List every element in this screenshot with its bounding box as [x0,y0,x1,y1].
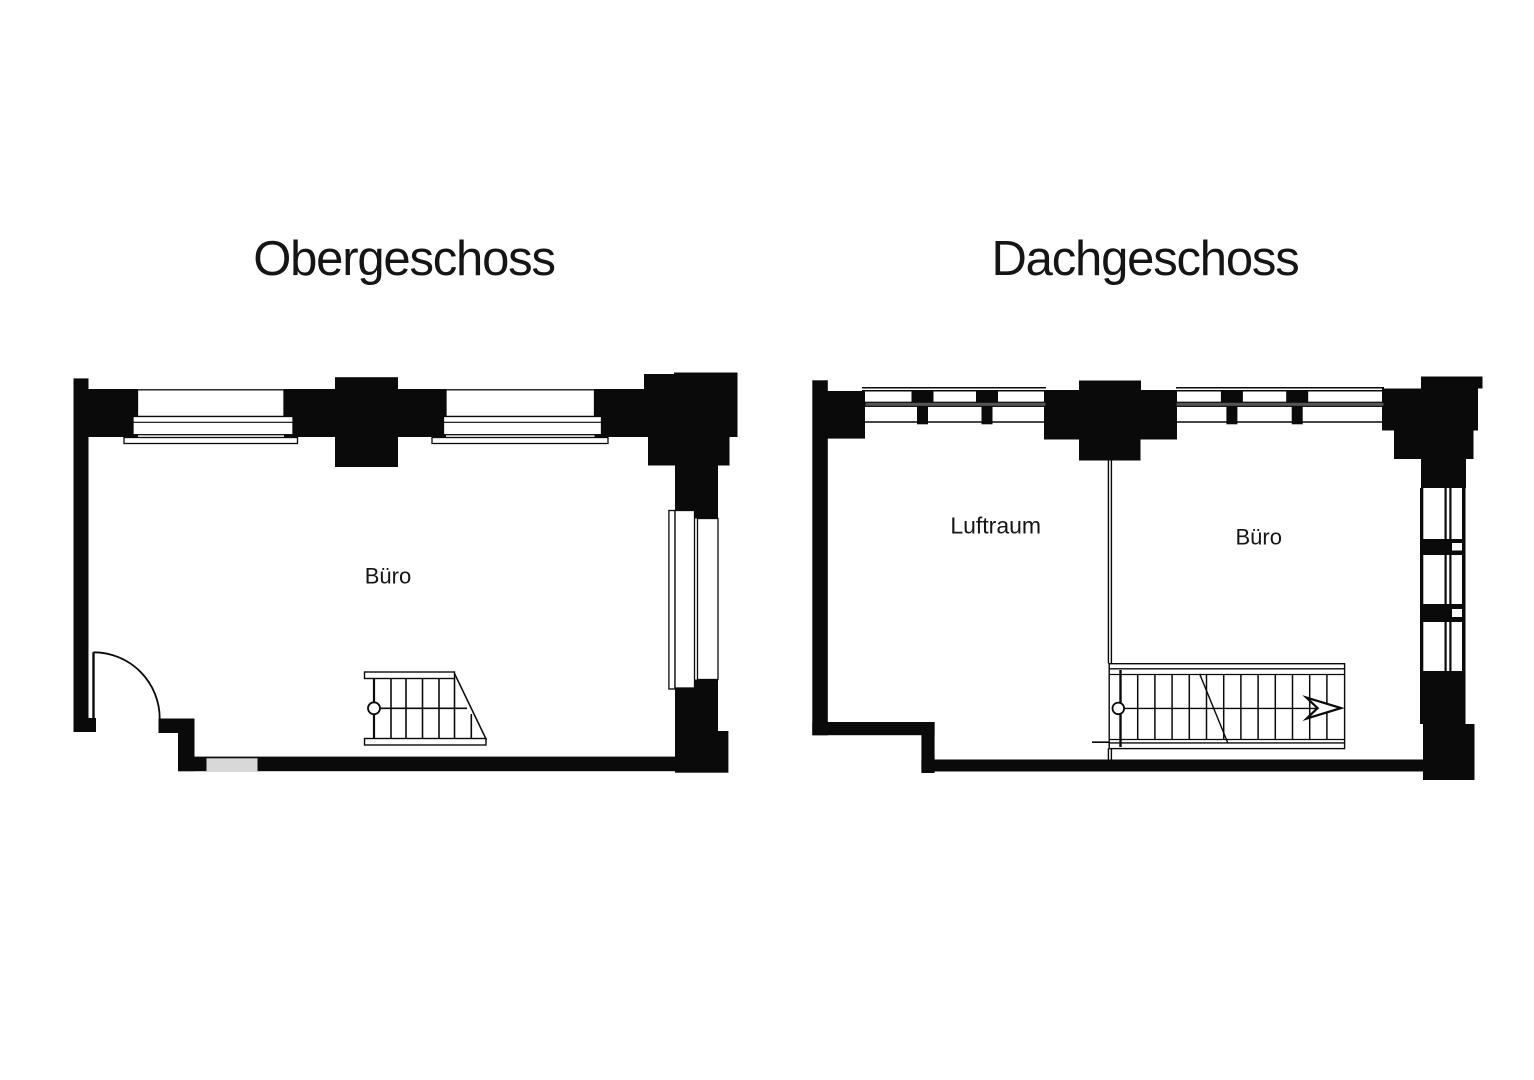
svg-text:Büro: Büro [1235,524,1281,549]
svg-text:Obergeschoss: Obergeschoss [253,232,555,286]
svg-text:Dachgeschoss: Dachgeschoss [992,232,1299,286]
svg-text:Luftraum: Luftraum [950,513,1041,539]
svg-text:Büro: Büro [365,563,411,588]
